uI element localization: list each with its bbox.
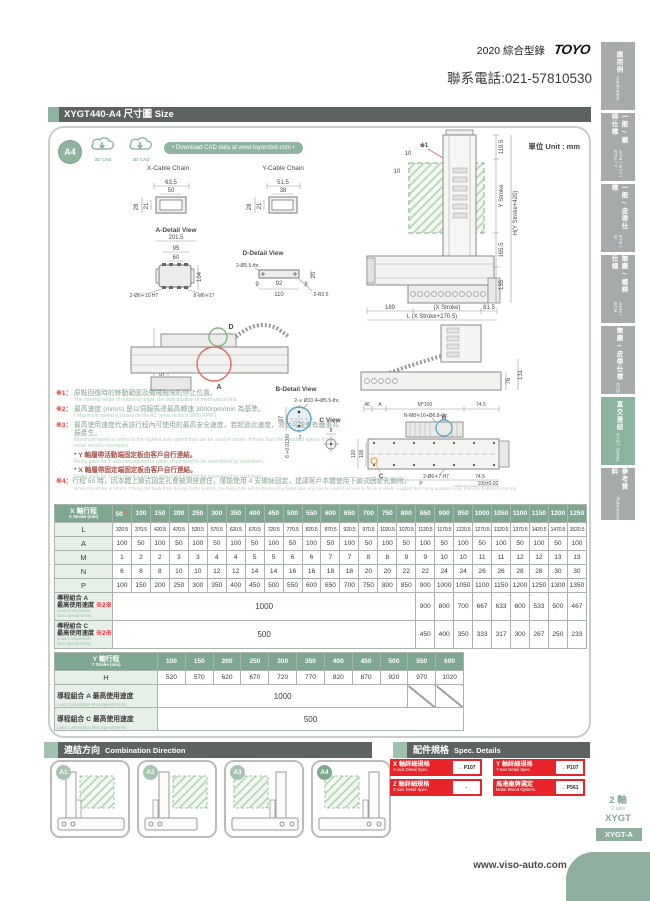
spec-button-z-axis[interactable]: Z 軸詳細規格 Z-axis Detail Spec. - (390, 779, 482, 796)
y-stroke-table: Y 軸行程Y Stroke (mm)1001502002503003504004… (54, 652, 464, 731)
not-available-cell (436, 685, 464, 708)
table-cell: 11 (473, 551, 492, 565)
table-cell: 820 (324, 671, 352, 685)
note-en: The moving range of returning origin, th… (74, 398, 238, 404)
dim-label: (X Stroke) (433, 305, 460, 311)
table-cell: 550 (283, 579, 302, 593)
toyo-logo: TOYO (553, 42, 591, 57)
table-cell: 450 (416, 621, 435, 649)
table-cell: 26 (492, 565, 511, 579)
tab-label-zh: 無塵 / 皮帶仕樣 (613, 327, 623, 380)
table-cell: 6 (283, 551, 302, 565)
dim-label: 20 (311, 271, 317, 278)
star-note: * Y 軸履帶活動端固定板由客戶自行連結。 Fixing plate for Y… (74, 452, 340, 466)
x-stroke-column-header: 100 (131, 505, 150, 523)
row-label: L (55, 523, 113, 537)
row-label: H (55, 671, 158, 685)
x-stroke-column-header: 1250 (567, 505, 586, 523)
dim-label: 74.5 (476, 402, 486, 408)
table-cell: 100 (454, 537, 473, 551)
table-cell: 24 (454, 565, 473, 579)
title-accent-square (48, 107, 59, 122)
y-speed-row: 導程組合 C 最高使用速度Lead Composition Max.Speed(… (55, 708, 464, 731)
table-cell: 50 (169, 537, 188, 551)
table-cell: 350 (207, 579, 226, 593)
table-cell: 1200 (511, 579, 530, 593)
table-cell: 1220.5 (454, 523, 473, 537)
table-cell: 1170.5 (435, 523, 454, 537)
table-cell: 5 (264, 551, 283, 565)
table-cell: 450 (245, 579, 264, 593)
table-cell: 1250 (529, 579, 548, 593)
note-ref: ※1： (56, 390, 74, 404)
y-table-header-label: Y 軸行程Y Stroke (mm) (55, 653, 158, 671)
x-stroke-column-header: 250 (188, 505, 207, 523)
table-cell: 520 (158, 671, 186, 685)
not-available-cell (408, 685, 436, 708)
table-cell: 100 (492, 537, 511, 551)
table-cell: 2 (131, 551, 150, 565)
merged-speed-cell: 1000 (113, 593, 416, 621)
sidebar-tab-ecb[interactable]: 無塵 / 皮帶仕樣ECB (601, 326, 635, 394)
dim-label: 51.5 (277, 180, 289, 186)
table-cell: 970.5 (359, 523, 378, 537)
table-cell: 1520.5 (567, 523, 586, 537)
table-cell: 10 (454, 551, 473, 565)
table-cell: 633 (492, 593, 511, 621)
table-cell: 1150 (492, 579, 511, 593)
table-cell: 12 (207, 565, 226, 579)
x-table-row-A: A100501005010050100501005010050100501005… (55, 537, 587, 551)
table-cell: 300 (188, 579, 207, 593)
table-cell: 1 (113, 551, 132, 565)
table-cell: 1470.5 (548, 523, 567, 537)
table-cell: 13 (567, 551, 586, 565)
note-en: Maximum speed is refers to the highest s… (74, 438, 340, 450)
sidebar-tab-etb-m[interactable]: 一般 / 皮帶仕樣ETB / M (601, 184, 635, 252)
note-zh: 最高使用速度代表該行程內可使用的最高安全速度，若超過此速度，滑台可能會有嚴重共振… (74, 422, 340, 438)
spec-button-y-axis[interactable]: Y 軸詳細規格 Y-axis Detail Spec. → P107 (493, 759, 585, 776)
table-cell: 50 (548, 537, 567, 551)
table-cell: 970 (408, 671, 436, 685)
card-badge: A2 (143, 765, 158, 780)
table-cell: 1320.5 (492, 523, 511, 537)
x-stroke-column-header: 200 (169, 505, 188, 523)
table-cell: 600 (302, 579, 321, 593)
tab-label-zh: 直交連結 (613, 401, 623, 431)
table-cell: 7 (340, 551, 359, 565)
table-cell: 12 (529, 551, 548, 565)
table-cell: 12 (511, 551, 530, 565)
table-cell: 7 (321, 551, 340, 565)
x-stroke-column-header: 1000 (473, 505, 492, 523)
y-table-header-row: Y 軸行程Y Stroke (mm)1001502002503003504004… (55, 653, 464, 671)
table-cell: 100 (567, 537, 586, 551)
table-cell: 467 (567, 593, 586, 621)
table-cell: 800 (378, 579, 397, 593)
x-cable-title: X-Cable Chain (147, 165, 190, 172)
table-cell: 1270.5 (473, 523, 492, 537)
dim-label: 9 (255, 282, 259, 288)
x-stroke-column-header: 450 (264, 505, 283, 523)
table-cell: 6 (302, 551, 321, 565)
dim-label: M*100 (418, 402, 433, 408)
x-stroke-column-header: 500 (283, 505, 302, 523)
table-cell: 333 (473, 621, 492, 649)
y-stroke-column-header: 250 (241, 653, 269, 671)
spec-title-zh: 配件規格 (413, 745, 449, 755)
spec-button-x-axis[interactable]: X 軸詳細規格 X-axis Detail Spec. → P107 (390, 759, 482, 776)
table-cell: 10 (435, 551, 454, 565)
table-cell: 720 (269, 671, 297, 685)
b-marker: B (442, 416, 447, 422)
sidebar-tab-application[interactable]: 應用例Application (601, 42, 635, 110)
table-cell: 30 (548, 565, 567, 579)
note-item: ※1： 原點回復時的移動範圍及機械極限的停止位置。 The moving ran… (56, 390, 340, 404)
card-badge: A1 (56, 765, 71, 780)
x-cable-chain-drawing: X-Cable Chain 63.5 50 28 21 (134, 165, 190, 213)
note-ref: ※4： (56, 478, 72, 485)
row-label: N (55, 565, 113, 579)
y-stroke-column-header: 600 (436, 653, 464, 671)
dim-label: 50 (168, 188, 175, 194)
y-speed-row: 導程組合 A 最高使用速度Lead Composition Max.Speed(… (55, 685, 464, 708)
dim-label: 120 (351, 450, 357, 459)
dim-label: Y Stroke (499, 184, 505, 208)
x-stroke-column-header: 650 (340, 505, 359, 523)
table-cell: 50 (131, 537, 150, 551)
y-cable-title: Y-Cable Chain (262, 165, 304, 172)
combination-section-bar: 連結方向Combination Direction (44, 742, 372, 758)
speed-row-label: 導程組合 A最高使用速度 ※2※3Lead CompositionMax.Spe… (55, 593, 113, 621)
y-stroke-column-header: 400 (324, 653, 352, 671)
y-cable-chain-drawing: Y-Cable Chain 51.5 38 28 21 (247, 165, 304, 213)
table-cell: 100 (378, 537, 397, 551)
table-cell: 50 (435, 537, 454, 551)
axis-count-label: 2 軸 (592, 796, 644, 806)
sidebar-tab-gth-gty-eth-y[interactable]: 一般 / 螺桿仕樣GTH / GTY / ETH / Y (601, 113, 635, 181)
sidebar-tab-xygt-series[interactable]: 直交連結XYGT Series (601, 397, 635, 465)
table-cell: 700 (340, 579, 359, 593)
x-stroke-column-header: 1150 (529, 505, 548, 523)
note-item: ※3： 最高使用速度代表該行程內可使用的最高安全速度，若超過此速度，滑台可能會有… (56, 422, 340, 450)
table-cell: 4 (226, 551, 245, 565)
table-cell: 50 (283, 537, 302, 551)
table-cell: 100 (302, 537, 321, 551)
table-cell: 8 (378, 551, 397, 565)
title-bar: XYGT440-A4 尺寸圖 Size (48, 107, 591, 122)
table-cell: 5 (245, 551, 264, 565)
tab-label-en: ETB / M (613, 235, 623, 252)
table-cell: 50 (397, 537, 416, 551)
table-cell: 9 (397, 551, 416, 565)
y-stroke-column-header: 500 (380, 653, 408, 671)
combination-card-a3: A3 (224, 760, 304, 838)
table-cell: 920 (380, 671, 408, 685)
series-label: XYGT (592, 813, 644, 825)
table-cell: 100 (188, 537, 207, 551)
table-cell: 100 (340, 537, 359, 551)
spec-button-page-link[interactable]: → P561 (556, 781, 583, 794)
spec-button-page-link[interactable]: - (453, 781, 480, 794)
tab-label-en: Reference (616, 497, 621, 520)
tab-label-en: Application (616, 76, 621, 101)
table-cell: 420.5 (150, 523, 169, 537)
dim-label: 165.5 (499, 242, 505, 258)
x-table-header-label: X 軸行程X Stroke (mm) (55, 505, 113, 523)
page-title: XYGT440-A4 尺寸圖 Size (64, 107, 174, 122)
note-zh: 行程 50 時，因本體上鎖式固定孔會被滑座遮住，僅能使用 4 支螺絲固定，建議客… (72, 478, 410, 485)
y-stroke-column-header: 300 (269, 653, 297, 671)
dim-label: 135 (499, 279, 505, 290)
table-cell: 100 (150, 537, 169, 551)
table-cell: 1020.5 (378, 523, 397, 537)
y-stroke-column-header: 550 (408, 653, 436, 671)
dim-label: 81.5 (483, 305, 495, 311)
dim-label: 108 (359, 450, 365, 459)
x-table-row-N: N688101012121414161618182020222224242626… (55, 565, 587, 579)
dim-label: 21 (257, 202, 263, 209)
merged-speed-cell: 1000 (158, 685, 408, 708)
sidebar-tab-gch-ech[interactable]: 無塵 / 螺桿仕樣GCH / ECH (601, 255, 635, 323)
table-cell: 8 (131, 565, 150, 579)
table-cell: 400 (226, 579, 245, 593)
table-cell: 870 (352, 671, 380, 685)
table-cell: 470.5 (169, 523, 188, 537)
x-stroke-column-header: 850 (416, 505, 435, 523)
table-cell: 320.5 (113, 523, 132, 537)
phone-number: 聯系電話:021-57810530 (432, 67, 592, 87)
spec-button-page-link[interactable]: → P107 (556, 761, 583, 774)
table-cell: 600 (511, 593, 530, 621)
table-cell: 1370.5 (511, 523, 530, 537)
dim-label: 104 (197, 271, 203, 282)
d-marker: D (228, 324, 233, 331)
merged-speed-cell: 500 (113, 621, 416, 649)
table-cell: 533 (529, 593, 548, 621)
table-cell: 770.5 (283, 523, 302, 537)
table-cell: 770 (297, 671, 325, 685)
table-cell: 28 (529, 565, 548, 579)
table-cell: 520.5 (188, 523, 207, 537)
size-drawing-panel: A4 2D CAD 3D CAD • Download CAD data at … (48, 126, 591, 738)
note-en: ( Maximum speed is based on the AC servo… (74, 414, 265, 420)
section-accent-square (393, 742, 407, 758)
spec-button-page-link[interactable]: → P107 (453, 761, 480, 774)
callout-label: 2-Ø5.5-thr. (236, 263, 260, 269)
dim-label: 63.5 (165, 180, 177, 186)
dim-label: 119.5 (499, 139, 505, 154)
table-cell: 1120.5 (416, 523, 435, 537)
d-detail-view-drawing: D-Detail View 2-Ø5.5-thr. 20 9 92 8 110 … (236, 250, 329, 298)
note-en: When the stroke is 50mm, if fixing the b… (74, 486, 588, 492)
speed-row-label: 導程組合 A 最高使用速度Lead Composition Max.Speed(… (55, 685, 158, 708)
table-cell: 100 (529, 537, 548, 551)
x-speed-row: 導程組合 A最高使用速度 ※2※3Lead CompositionMax.Spe… (55, 593, 587, 621)
dim-label: 46 (364, 402, 370, 408)
table-cell: 28 (511, 565, 530, 579)
dim-label: 10 (405, 151, 412, 157)
table-cell: 900 (416, 593, 435, 621)
x-stroke-column-header: 1100 (511, 505, 530, 523)
model-badge: XYGT-A (596, 828, 642, 841)
combination-title-en: Combination Direction (105, 746, 185, 755)
dim-label: 76 (506, 377, 512, 384)
table-cell: 20 (378, 565, 397, 579)
table-cell: 1420.5 (529, 523, 548, 537)
speed-row-label: 導程組合 C最高使用速度 ※2※3Lead CompositionMax.Spe… (55, 621, 113, 649)
dim-label: 10 (394, 169, 401, 175)
table-cell: 233 (567, 621, 586, 649)
table-cell: 100 (226, 537, 245, 551)
y-table-row-H: H5205706206707207708208709209701020 (55, 671, 464, 685)
dim-label: 92 (276, 281, 283, 287)
y-stroke-column-header: 450 (352, 653, 380, 671)
x-stroke-column-header: 800 (397, 505, 416, 523)
table-cell: 700 (454, 593, 473, 621)
table-cell: 720.5 (264, 523, 283, 537)
x-stroke-table: X 軸行程X Stroke (mm)50※4100150200250300350… (54, 504, 587, 649)
d-detail-title: D-Detail View (242, 250, 284, 257)
table-cell: 100 (113, 579, 132, 593)
table-cell: 620 (213, 671, 241, 685)
table-cell: 750 (359, 579, 378, 593)
table-cell: 1050 (454, 579, 473, 593)
table-cell: 670 (241, 671, 269, 685)
table-cell: 50 (473, 537, 492, 551)
x-stroke-column-header: 350 (226, 505, 245, 523)
table-cell: 50 (321, 537, 340, 551)
y-stroke-column-header: 100 (158, 653, 186, 671)
row-label: A (55, 537, 113, 551)
x-stroke-column-header: 400 (245, 505, 264, 523)
table-cell: 14 (245, 565, 264, 579)
dim-label: 131 (518, 369, 524, 380)
plan-view-drawing: 46 A M*100 74.5 N-M8∓16+Ø6.8-thr. B 120 … (351, 402, 509, 487)
x-stroke-column-header: 300 (207, 505, 226, 523)
table-cell: 18 (340, 565, 359, 579)
table-cell: 14 (264, 565, 283, 579)
table-cell: 900 (416, 579, 435, 593)
spec-section-bar: 配件規格Spec. Details (393, 742, 590, 758)
header-brand: 2020 綜合型錄 TOYO (430, 42, 590, 58)
dim-label: 38 (280, 188, 287, 194)
dim-label: 110 (274, 292, 284, 298)
table-cell: 250 (169, 579, 188, 593)
dim-label: 189 (385, 305, 396, 311)
card-badge: A4 (317, 765, 332, 780)
table-cell: 1300 (548, 579, 567, 593)
side-view2-drawing: 76 131 (361, 325, 524, 390)
table-cell: 850 (397, 579, 416, 593)
tab-label-zh: 一般 / 皮帶仕樣 (608, 184, 628, 233)
y-stroke-column-header: 150 (185, 653, 213, 671)
table-cell: 26 (473, 565, 492, 579)
dim-label: A (378, 402, 382, 408)
table-cell: 920.5 (340, 523, 359, 537)
corner-decoration (566, 852, 650, 901)
x-stroke-column-header: 900 (435, 505, 454, 523)
table-cell: 100 (264, 537, 283, 551)
table-cell: 9 (416, 551, 435, 565)
tab-label-en: XYGT Series (616, 433, 621, 462)
table-cell: 150 (131, 579, 150, 593)
table-cell: 4 (207, 551, 226, 565)
table-cell: 6 (113, 565, 132, 579)
table-cell: 1070.5 (397, 523, 416, 537)
table-cell: 670.5 (245, 523, 264, 537)
callout-label: 2-Ø6∓10 H7 (130, 293, 159, 299)
x-stroke-column-header: 950 (454, 505, 473, 523)
x-speed-row: 導程組合 C最高使用速度 ※2※3Lead CompositionMax.Spe… (55, 621, 587, 649)
dim-label: H(Y Stroke+420) (513, 191, 519, 236)
table-cell: 10 (188, 565, 207, 579)
y-stroke-column-header: 350 (297, 653, 325, 671)
combination-card-a4: A4 (311, 760, 391, 838)
x-stroke-column-header: 700 (359, 505, 378, 523)
table-cell: 100 (416, 537, 435, 551)
card-badge: A3 (230, 765, 245, 780)
tab-label-en: GTH / GTY / ETH / Y (613, 150, 623, 181)
tab-label-zh: 應用例 (613, 51, 623, 74)
table-cell: 350 (454, 621, 473, 649)
notes-block: ※1： 原點回復時的移動範圍及機械極限的停止位置。 The moving ran… (56, 390, 340, 481)
table-cell: 1350 (567, 579, 586, 593)
section-accent-square (44, 742, 58, 758)
table-cell: 100 (113, 537, 132, 551)
table-cell: 300 (511, 621, 530, 649)
table-cell: 22 (416, 565, 435, 579)
table-cell: 50 (245, 537, 264, 551)
sidebar-tab-reference[interactable]: 參考資料Reference (601, 468, 635, 520)
table-cell: 870.5 (321, 523, 340, 537)
spec-button-motor-brand[interactable]: 馬達廠牌選定 Motor Brand Options. → P561 (493, 779, 585, 796)
table-cell: 10 (169, 565, 188, 579)
table-cell: 18 (321, 565, 340, 579)
table-cell: 12 (226, 565, 245, 579)
a-detail-view-drawing: A-Detail View 201.5 95 60 104 2-Ø6∓10 H7… (130, 227, 215, 299)
table-cell: 1000 (435, 579, 454, 593)
catalog-page: 2020 綜合型錄 TOYO 聯系電話:021-57810530 應用例Appl… (0, 0, 650, 901)
table-cell: 22 (397, 565, 416, 579)
x-stroke-column-header: 1050 (492, 505, 511, 523)
table-cell: 317 (492, 621, 511, 649)
table-cell: 667 (473, 593, 492, 621)
table-cell: 820.5 (302, 523, 321, 537)
note4-block: ※4：行程 50 時，因本體上鎖式固定孔會被滑座遮住，僅能使用 4 支螺絲固定，… (56, 478, 588, 492)
table-cell: 16 (283, 565, 302, 579)
dim-label: 21 (144, 202, 150, 209)
table-cell: 400 (435, 621, 454, 649)
combination-card-a1: A1 (50, 760, 130, 838)
table-cell: 30 (567, 565, 586, 579)
speed-row-label: 導程組合 C 最高使用速度Lead Composition Max.Speed(… (55, 708, 158, 731)
table-cell: 24 (435, 565, 454, 579)
x-stroke-column-header: 750 (378, 505, 397, 523)
tab-label-en: GCH / ECH (613, 302, 623, 323)
tab-label-en: ECB (616, 383, 621, 393)
row-label: M (55, 551, 113, 565)
note-ref: ※3： (56, 422, 74, 450)
x-table-header-row: X 軸行程X Stroke (mm)50※4100150200250300350… (55, 505, 587, 523)
table-cell: 20 (359, 565, 378, 579)
row-label: P (55, 579, 113, 593)
table-cell: 650 (321, 579, 340, 593)
dim-label: 201.5 (168, 235, 184, 241)
a-detail-title: A-Detail View (155, 227, 197, 234)
dim-label: 60 (173, 255, 180, 261)
x-table-row-M: M122334455667788991010111112121313 (55, 551, 587, 565)
